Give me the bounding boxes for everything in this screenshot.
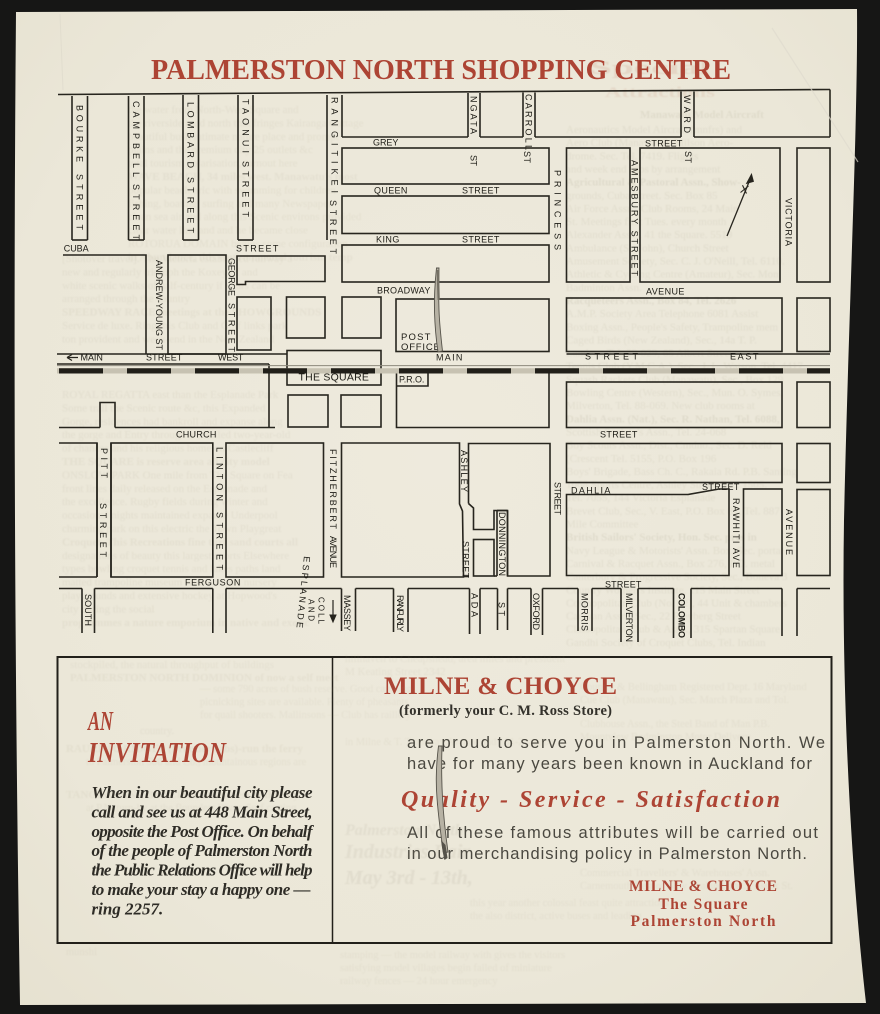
svg-text:PALMERSTON NORTH SHOPPING CENT: PALMERSTON NORTH SHOPPING CENTRE [151, 55, 731, 86]
svg-text:picnicking sites are availa: picnicking sites are available. Plenty o… [200, 697, 408, 708]
svg-text:Service de luxe. Ring thi: Service de luxe. Ring this Club and Golf… [62, 320, 288, 332]
svg-text:M Keating Street 2342: M Keating Street 2342 [345, 666, 446, 678]
svg-text:arranged through the countr: arranged through the country [62, 293, 190, 305]
svg-text:Country & Bellingham Regist: Country & Bellingham Registered Dept. 16… [580, 682, 807, 693]
svg-text:Industries Fair: Industries Fair [344, 841, 470, 863]
svg-text:ST: ST [683, 151, 693, 164]
svg-text:MASSEY: MASSEY [342, 595, 352, 631]
svg-text:charming park on this elec: charming park on this electric the Town … [62, 523, 281, 535]
svg-text:ROYAL REGATTA east than th: ROYAL REGATTA east than the Esplanade Pa… [62, 389, 279, 401]
svg-text:Caged Birds (New Zealand), Sec: Caged Birds (New Zealand), Sec., 14a T. … [566, 334, 757, 346]
svg-text:stamping — the model railw: stamping — the model railway with gives … [340, 950, 565, 961]
svg-text:satisfying model villages b: satisfying model villages begin failed o… [340, 963, 552, 974]
svg-text:Country Women's Institute, 115: Country Women's Institute, 115 Main Stre… [566, 584, 760, 596]
svg-text:GEORGE: GEORGE [227, 258, 237, 296]
svg-text:CARROLL: CARROLL [524, 94, 534, 150]
svg-text:AVENUE: AVENUE [646, 287, 685, 297]
svg-text:COLOMBO: COLOMBO [677, 593, 687, 638]
svg-text:ST: ST [469, 155, 479, 167]
svg-text:Attractions: Attractions [605, 85, 715, 101]
svg-text:A.M.P. Society Area Telephone: A.M.P. Society Area Telephone 6081 Assis… [566, 308, 758, 320]
svg-text:have for many years been known: have for many years been known in Auckla… [407, 755, 813, 773]
svg-text:PALMERSTON NORTH DOMINION o: PALMERSTON NORTH DOMINION of now a self … [70, 672, 339, 684]
svg-text:popular beach bric with sw: popular beach bric with swimming for chi… [128, 184, 336, 196]
svg-text:STREET: STREET [462, 235, 500, 245]
svg-text:of the people of Palmersto: of the people of Palmerston North [92, 841, 313, 860]
svg-text:AMESBURY STREET: AMESBURY STREET [630, 160, 640, 277]
svg-text:to make your stay a happy one: to make your stay a happy one — [92, 880, 311, 899]
svg-text:grounds, Cuba Street. Sec.: grounds, Cuba Street. Sec. Box 85 [566, 190, 718, 202]
svg-text:Mile Committee: Mile Committee [566, 519, 639, 531]
svg-text:RAURIMU RIDGES (Frontier cab: RAURIMU RIDGES (Frontier cabs)-run the f… [66, 743, 303, 755]
svg-text:country.: country. [140, 726, 174, 737]
svg-text:Air Force Assn., Club Rooms, 2: Air Force Assn., Club Rooms, 24 Main [566, 203, 739, 215]
svg-text:Gandhi Society of Croquet: Gandhi Society of Croquet Clubs, Tel. In… [566, 637, 766, 649]
svg-text:FITZHERBERT: FITZHERBERT [328, 449, 338, 530]
svg-text:— some 790 acres of bush: — some 790 acres of bush reserve. Good c… [199, 684, 413, 695]
svg-text:WEST: WEST [218, 353, 244, 363]
svg-text:types bowling croquet tenni: types bowling croquet tennis and lakes p… [62, 563, 281, 575]
svg-text:CUBA: CUBA [64, 244, 90, 254]
svg-text:this year another colossal: this year another colossal feast quite a… [470, 898, 669, 909]
svg-text:BROADWAY: BROADWAY [377, 286, 431, 296]
svg-text:RANGITIKEI: RANGITIKEI [330, 97, 340, 193]
svg-text:Cosmopolitan Club (No. 22), 44: Cosmopolitan Club (No. 22), 44 Unit & ch… [566, 597, 787, 609]
svg-text:Athletic & Cycling Centre (Ama: Athletic & Cycling Centre (Amateur), Sec… [566, 269, 779, 281]
svg-text:P.R.O.: P.R.O. [399, 375, 425, 385]
svg-text:Commercial Travellers' & Wa: Commercial Travellers' & Warehouses' Ass… [580, 868, 770, 879]
svg-text:St. Meetings first Tues. ever: St. Meetings first Tues. every month [566, 216, 727, 228]
svg-text:ST: ST [522, 151, 532, 164]
svg-text:Clubhouse Assn., the Steel: Clubhouse Assn., the Steel Band of Man P… [580, 719, 770, 730]
svg-text:KING: KING [376, 235, 400, 245]
svg-text:Mountview Bodminston Motor: Mountview Bodminston Motor Delivery [580, 732, 751, 743]
svg-text:British Sailors' Society, H: British Sailors' Society, Hon. Sec. pres… [566, 532, 757, 544]
svg-text:STREET: STREET [461, 541, 471, 579]
svg-text:railway fences — 24 hour: railway fences — 24 hour emergency [340, 976, 498, 987]
svg-text:fishing, boating, surfing a: fishing, boating, surfing and many Newsp… [128, 198, 332, 210]
svg-text:Brevet Club, Sec., V. East, P.: Brevet Club, Sec., V. East, P.O. Box 87,… [566, 505, 780, 517]
svg-text:munshi: munshi [66, 947, 97, 958]
svg-text:PITT: PITT [99, 448, 109, 479]
svg-text:Bowling Centre (Western), Sec.: Bowling Centre (Western), Sec., Mun. O. … [566, 387, 784, 399]
svg-text:in Milne & T. Tramway Ave: in Milne & T. Tramway Avenue and 161-2 s… [345, 737, 555, 748]
svg-text:AND: AND [306, 599, 315, 621]
svg-text:the water from North-West: the water from North-West Square and [128, 104, 299, 116]
svg-text:total tourism polarisation,: total tourism polarisation, turnout here [128, 158, 298, 170]
svg-text:Manawatu Model Aircraft: Manawatu Model Aircraft [640, 109, 764, 121]
svg-text:Dahlia Assn. (Nat.), Sec.: Dahlia Assn. (Nat.), Sec. R. Nathan, Tel… [566, 413, 780, 425]
svg-text:STREET: STREET [600, 430, 638, 440]
svg-text:TANGIMOANA BEACH 24 miles: TANGIMOANA BEACH 24 miles west of the ci… [66, 789, 299, 801]
svg-text:Gorge, residences had bankr: Gorge, residences had bankroll and expan… [62, 416, 283, 428]
svg-text:ring 2257.: ring 2257. [92, 899, 164, 918]
svg-text:clear water line and and he be: clear water line and and he became close [128, 225, 308, 237]
svg-text:Ambulance (St. John), Church: Ambulance (St. John), Church Street [566, 242, 729, 254]
svg-text:the Public Relations Office wi: the Public Relations Office will help [92, 861, 313, 880]
svg-text:MAIN: MAIN [81, 353, 104, 363]
svg-text:RANFURLY: RANFURLY [395, 595, 405, 632]
svg-text:and week end trips by arr: and week end trips by arrangement [566, 163, 720, 175]
svg-text:MILVERTON: MILVERTON [624, 593, 634, 642]
svg-text:CHURCH: CHURCH [176, 430, 217, 440]
svg-text:AN: AN [87, 706, 114, 736]
svg-text:front lines daily released: front lines daily released on the Esplan… [62, 483, 267, 495]
svg-text:opposite the Post Office. On: opposite the Post Office. On behalf [92, 822, 315, 841]
svg-text:Badminton Assn.: Badminton Assn. [566, 282, 642, 294]
svg-text:beautiful bush intimate nat: beautiful bush intimate nature place and… [128, 131, 339, 143]
svg-text:Milverton, Tel. 88-069. New: Milverton, Tel. 88-069. New club rooms a… [566, 400, 755, 412]
svg-text:the also district, active: the also district, active buses and lead… [470, 911, 642, 922]
svg-text:OFFICE: OFFICE [401, 342, 441, 353]
svg-text:SPEEDWAY RACE meetings at: SPEEDWAY RACE meetings at the SHOWGROUND… [62, 307, 321, 319]
svg-text:OXFORD: OXFORD [531, 593, 541, 631]
svg-text:MORRIS: MORRIS [580, 593, 590, 631]
svg-text:to Palmerston 586 and Co.,: to Palmerston 586 and Co., mountainous r… [86, 757, 307, 768]
svg-text:All of these famous attributes: All of these famous attributes will be c… [407, 824, 818, 842]
svg-text:Palmerston North: Palmerston North [631, 913, 776, 930]
svg-text:Alexander Assn., 41 the Square: Alexander Assn., 41 the Square. 5519 [566, 229, 733, 241]
svg-text:Squash Rackets Club (Manawa: Squash Rackets Club (Manawatu), Sec., Bo… [566, 374, 784, 386]
svg-text:Boxing Assn., People's Safe: Boxing Assn., People's Safety, Trampolin… [566, 321, 779, 333]
svg-text:FERGUSON: FERGUSON [185, 578, 241, 588]
svg-text:AVENUE: AVENUE [328, 536, 338, 568]
svg-text:of chances and his religio: of chances and his religious home on Cas… [62, 443, 274, 455]
svg-text:stockpiled, the natural throug: stockpiled, the natural throughput of bu… [70, 659, 274, 671]
svg-text:designations of beauty this: designations of beauty this largest spor… [62, 550, 289, 562]
svg-text:plains and the premium city 25: plains and the premium city 25 outlets &… [128, 144, 313, 156]
svg-text:VICTORIA: VICTORIA [784, 198, 794, 246]
svg-text:Boys' Brigade, Bass Ch. C., Ra: Boys' Brigade, Bass Ch. C., Rakaia Rd. P… [566, 466, 797, 478]
svg-text:EAST: EAST [730, 352, 760, 362]
svg-text:Racqueteers Assn., Box 84,: Racqueteers Assn., Box 84, Tel. 2626 [566, 295, 737, 307]
svg-text:May 3rd - 13th,: May 3rd - 13th, [344, 867, 473, 889]
svg-text:Some trail the Scenic rout: Some trail the Scenic route &c, this Exp… [62, 402, 266, 414]
svg-text:COLL: COLL [316, 597, 325, 625]
svg-text:STREET: STREET [146, 353, 183, 363]
svg-text:occasional nights maintained: occasional nights maintained expanse Und… [62, 510, 278, 522]
svg-text:STREET: STREET [462, 186, 500, 196]
svg-text:GREY: GREY [373, 138, 399, 148]
svg-text:ADA: ADA [470, 593, 480, 617]
svg-text:Aeronautics Model Aircraft (mn: Aeronautics Model Aircraft (mnfrs) and [566, 124, 742, 136]
svg-text:AVENUE: AVENUE [784, 509, 794, 555]
svg-text:ANDREW-YOUNG ST: ANDREW-YOUNG ST [154, 260, 164, 351]
svg-text:STREET: STREET [553, 482, 563, 516]
svg-text:THE SQUARE is reserve area: THE SQUARE is reserve area all city mode… [62, 456, 270, 468]
svg-text:Navy League & Motorists' Assn: Navy League & Motorists' Assn. Box, Sec.… [566, 545, 784, 557]
svg-text:PRINCESS: PRINCESS [553, 170, 563, 250]
svg-text:STREET: STREET [645, 139, 683, 149]
svg-text:SOUTH: SOUTH [83, 594, 93, 626]
svg-text:Cue Club (Manawatu), Sec.: Cue Club (Manawatu), Sec. March Plaza an… [580, 695, 789, 706]
svg-text:Carnemouth Rest of New Zea: Carnemouth Rest of New Zealand (Inc.), E… [580, 881, 793, 892]
svg-text:at P.N. turn-by at the fl: at P.N. turn-by at the flounders River. … [86, 803, 297, 814]
svg-text:hillhaven to Cheapshead, ar: hillhaven to Cheapshead, area miles and … [345, 653, 565, 665]
svg-text:for quail shooters. Mallin: for quail shooters. Mallinsons — Club ha… [200, 710, 412, 721]
svg-text:Canterbury & Progressive Socie: Canterbury & Progressive Society, Sec., … [566, 571, 788, 583]
svg-text:Amusement Society, Sec. C. J.: Amusement Society, Sec. C. J. O'Neill, T… [566, 256, 785, 268]
svg-text:city during the social: city during the social [62, 603, 155, 615]
svg-text:DONNINGTON: DONNINGTON [497, 512, 507, 576]
svg-text:matted trampoline museum wi: matted trampoline museum with annuals nu… [62, 577, 277, 589]
svg-text:NGATA: NGATA [469, 96, 479, 134]
svg-text:STREET: STREET [236, 244, 279, 254]
svg-text:(Crescent Tel. 5155, P.O. Box: (Crescent Tel. 5155, P.O. Box 196 [566, 453, 717, 465]
svg-text:programmes a nature emporiu: programmes a nature emporium in native a… [62, 617, 309, 629]
svg-text:The Square: The Square [659, 896, 748, 913]
svg-text:Agricultural & Pastoral Assn.,: Agricultural & Pastoral Assn., Show- [566, 177, 741, 189]
svg-text:QUEEN: QUEEN [374, 186, 408, 196]
svg-text:Boy Scouts Assn., Dist., C: Boy Scouts Assn., Dist., Cmdno., Sec. D.… [566, 440, 772, 452]
svg-text:the excellence. Rugby fiel: the excellence. Rugby fields during wint… [62, 496, 268, 508]
svg-text:MAIN: MAIN [436, 353, 463, 363]
